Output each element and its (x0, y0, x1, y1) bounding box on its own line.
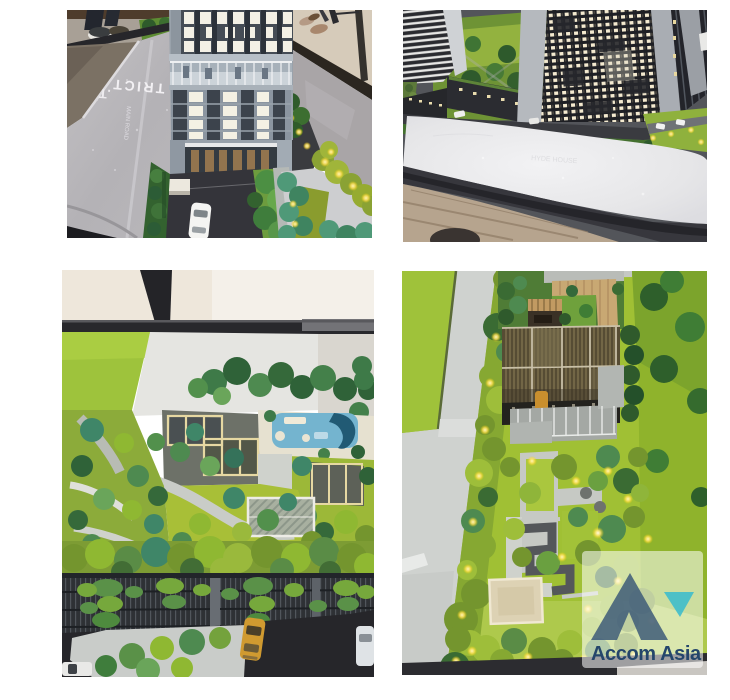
svg-text:Accom Asia: Accom Asia (591, 643, 702, 665)
svg-text:.T: .T (98, 86, 111, 102)
